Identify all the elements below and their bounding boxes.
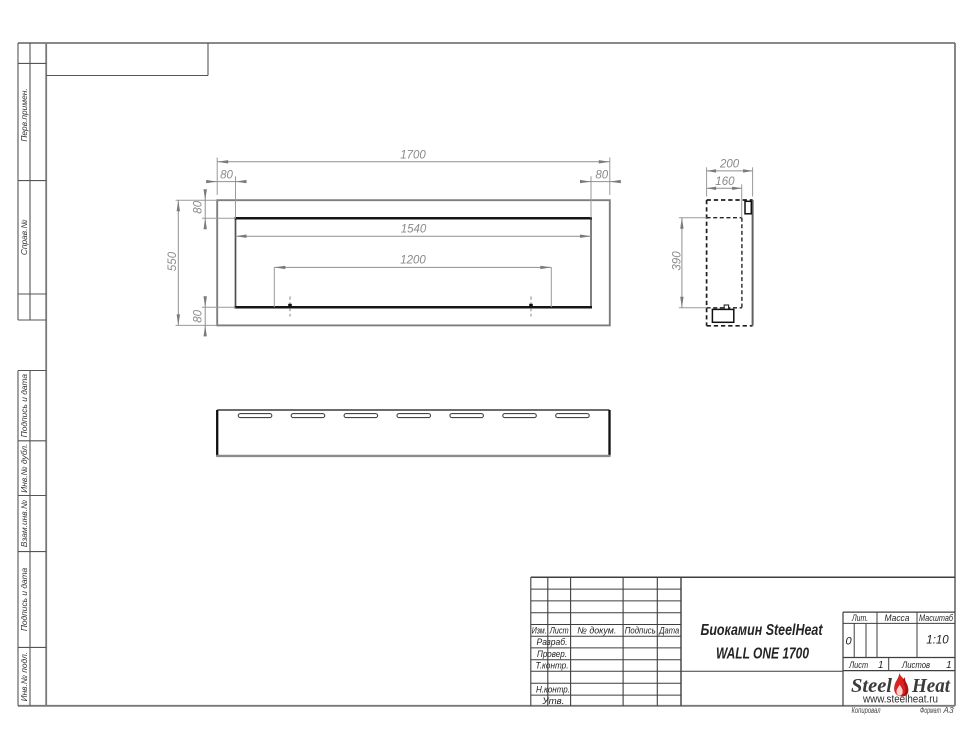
svg-text:www.steelheat.ru: www.steelheat.ru <box>862 694 938 706</box>
svg-text:1: 1 <box>878 660 883 671</box>
svg-text:1200: 1200 <box>400 254 426 266</box>
svg-text:Взам.инв.№: Взам.инв.№ <box>19 500 29 547</box>
svg-text:Разраб.: Разраб. <box>537 637 568 647</box>
svg-text:Справ.№: Справ.№ <box>19 219 29 255</box>
svg-text:Инв.№ дубл.: Инв.№ дубл. <box>19 444 29 493</box>
svg-text:0: 0 <box>846 635 853 647</box>
svg-text:1: 1 <box>946 660 951 671</box>
svg-text:Подпись: Подпись <box>625 626 656 636</box>
svg-text:Масштаб: Масштаб <box>919 613 954 623</box>
svg-text:Подпись и дата: Подпись и дата <box>19 567 29 631</box>
svg-text:80: 80 <box>193 200 205 213</box>
svg-text:Лист: Лист <box>848 660 868 670</box>
svg-text:Листов: Листов <box>901 660 930 670</box>
svg-text:Лист: Лист <box>549 626 569 636</box>
svg-text:200: 200 <box>719 158 740 170</box>
svg-text:Лит.: Лит. <box>851 613 868 623</box>
svg-text:80: 80 <box>595 169 608 181</box>
svg-text:Масса: Масса <box>885 613 910 623</box>
svg-text:1700: 1700 <box>400 149 426 161</box>
svg-text:Н.контр.: Н.контр. <box>536 684 570 694</box>
svg-text:80: 80 <box>193 309 205 322</box>
svg-text:Копировал: Копировал <box>852 705 881 715</box>
svg-text:390: 390 <box>672 251 684 271</box>
svg-text:1:10: 1:10 <box>926 635 949 647</box>
svg-text:WALL ONE 1700: WALL ONE 1700 <box>716 646 809 663</box>
svg-text:Утв.: Утв. <box>541 696 564 706</box>
svg-text:Инв.№ подл.: Инв.№ подл. <box>19 652 29 702</box>
svg-text:Т.контр.: Т.контр. <box>536 661 569 671</box>
svg-text:Перв.примен.: Перв.примен. <box>19 88 29 141</box>
svg-text:Изм.: Изм. <box>532 626 547 636</box>
svg-text:Формат: Формат <box>920 705 941 715</box>
svg-text:Дата: Дата <box>658 626 679 636</box>
svg-text:Биокамин SteelHeat: Биокамин SteelHeat <box>701 622 824 639</box>
svg-text:160: 160 <box>715 176 735 188</box>
svg-text:Подпись и дата: Подпись и дата <box>19 374 29 438</box>
svg-text:№ докум.: № докум. <box>577 626 616 636</box>
svg-text:Провер.: Провер. <box>537 649 567 659</box>
svg-text:80: 80 <box>220 169 233 181</box>
svg-text:А3: А3 <box>942 705 954 715</box>
svg-text:1540: 1540 <box>401 223 427 235</box>
svg-text:550: 550 <box>167 251 179 271</box>
